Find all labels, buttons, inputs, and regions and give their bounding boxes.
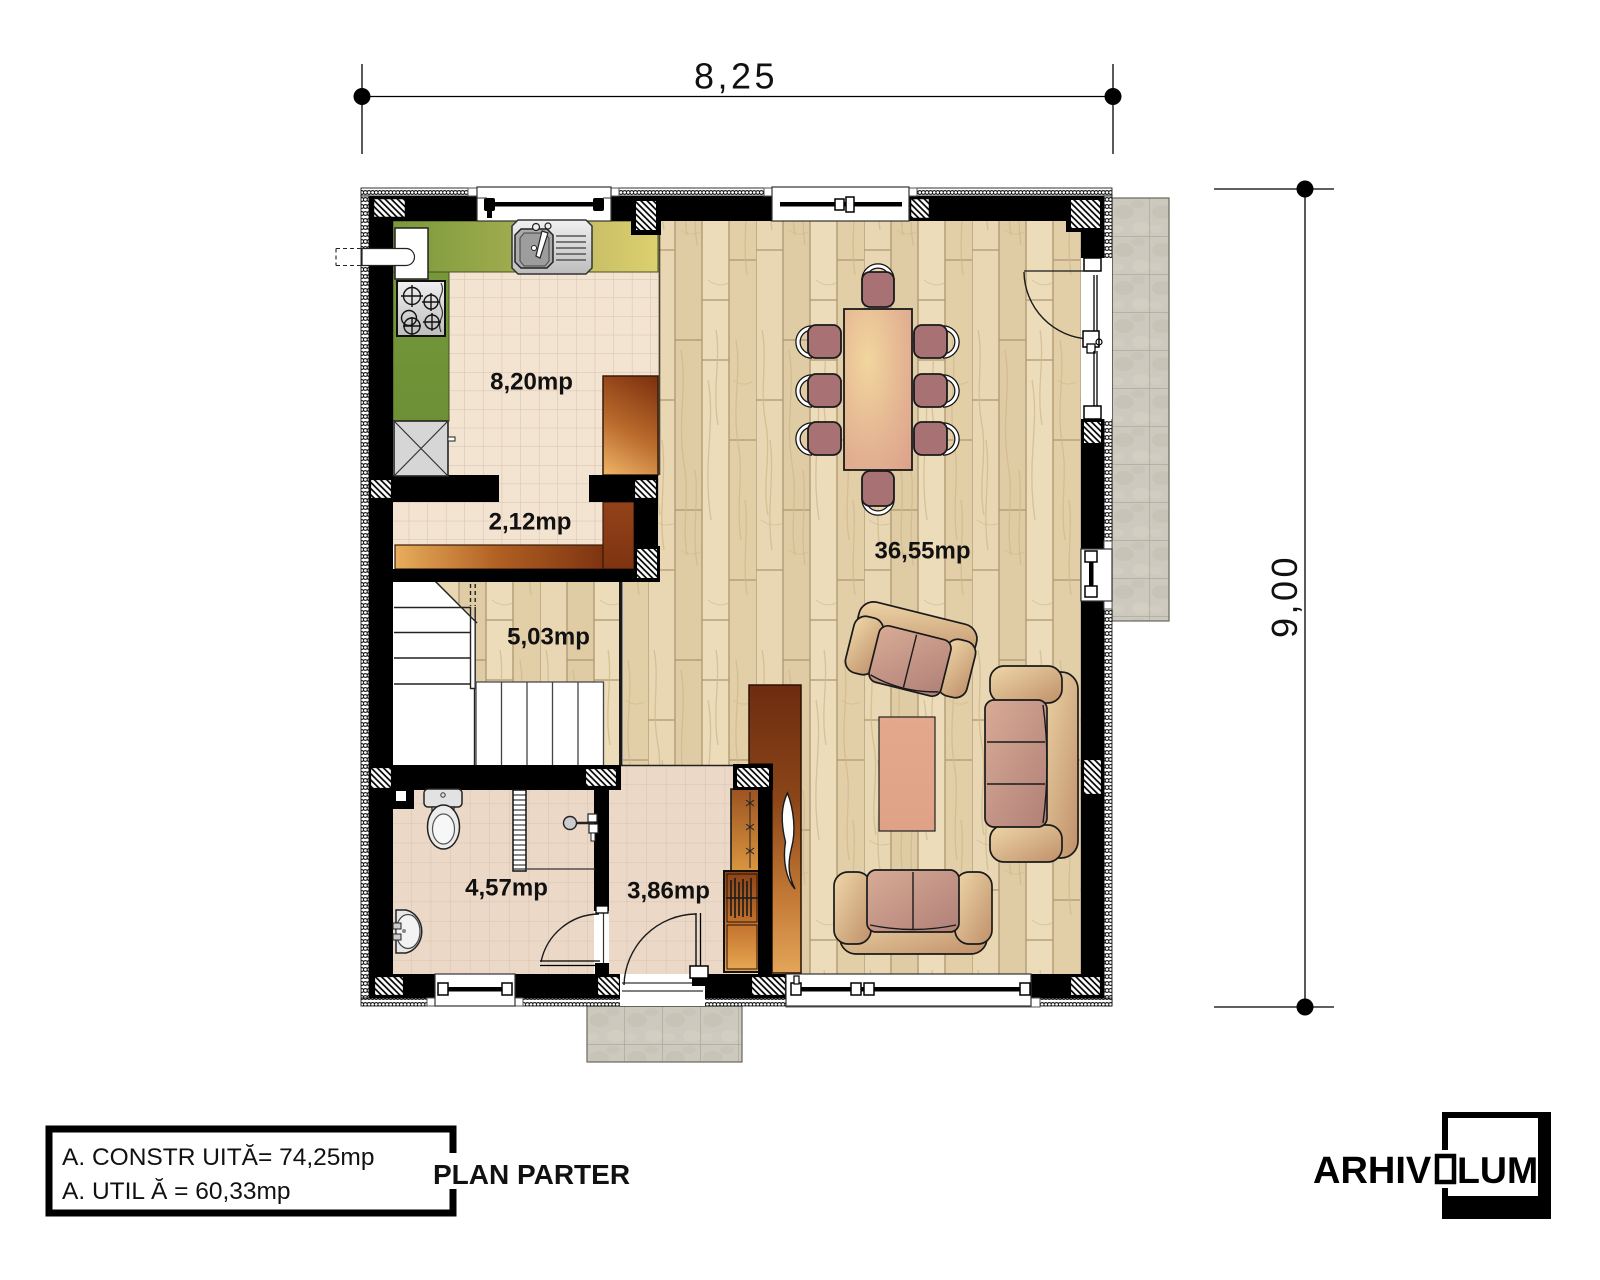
svg-text:9,00: 9,00 [1264, 554, 1305, 638]
svg-text:LUM: LUM [1457, 1149, 1538, 1191]
svg-text:8,20mp: 8,20mp [490, 369, 573, 396]
svg-text:3,86mp: 3,86mp [627, 878, 710, 905]
svg-text:5,03mp: 5,03mp [507, 624, 590, 651]
svg-text:8,25: 8,25 [694, 56, 778, 97]
svg-text:A. CONSTR UITĂ= 74,25mp: A. CONSTR UITĂ= 74,25mp [62, 1144, 374, 1171]
svg-text:2,12mp: 2,12mp [489, 509, 572, 536]
svg-text:4,57mp: 4,57mp [465, 875, 548, 902]
svg-text:PLAN PARTER: PLAN PARTER [433, 1159, 630, 1190]
svg-text:36,55mp: 36,55mp [874, 538, 970, 565]
svg-text:A. UTIL Ă = 60,33mp: A. UTIL Ă = 60,33mp [62, 1178, 291, 1205]
svg-text:ARHIV: ARHIV [1313, 1150, 1432, 1192]
